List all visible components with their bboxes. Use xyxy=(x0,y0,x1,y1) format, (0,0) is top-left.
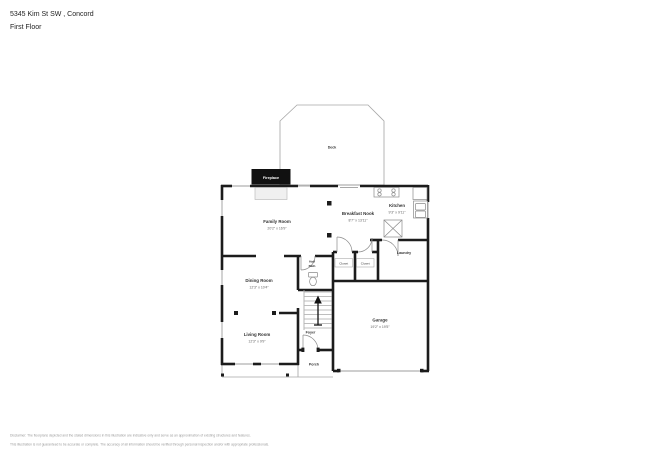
half-bath-label-line2: Bath xyxy=(309,264,316,268)
room-dims-family-room: 20'2" x 16'9" xyxy=(267,227,287,231)
staircase xyxy=(304,290,332,330)
room-dims-dining-room: 12'3" x 10'4" xyxy=(249,286,269,290)
room-dims-kitchen: 9'3" x 9'11" xyxy=(389,211,407,215)
address-title: 5345 Kim St SW , Concord xyxy=(10,11,94,18)
stove-icon xyxy=(374,188,399,198)
room-dims-living-room: 12'3" x 9'9" xyxy=(248,340,266,344)
disclaimer-line1: Disclaimer: The floorplans depicted and … xyxy=(10,434,251,438)
room-dims-breakfast-nook: 8'7" x 13'11" xyxy=(349,219,369,223)
floorplan-page: 5345 Kim St SW , Concord First Floor xyxy=(0,0,650,460)
deck-label: Deck xyxy=(328,146,337,150)
hearth xyxy=(255,188,287,200)
room-label-kitchen: Kitchen xyxy=(389,203,405,208)
room-label-living-room: Living Room xyxy=(244,332,271,337)
room-label-garage: Garage xyxy=(372,318,388,323)
porch-label: Porch xyxy=(309,363,319,367)
closet-left-label: Closet xyxy=(339,261,348,265)
room-label-family-room: Family Room xyxy=(263,219,291,224)
floorplan-canvas: 5345 Kim St SW , Concord First Floor xyxy=(0,0,650,460)
disclaimer-line2: This illustration is not guaranteed to b… xyxy=(10,443,269,447)
floor-title: First Floor xyxy=(10,24,42,31)
closet-right-label: Closet xyxy=(361,261,370,265)
room-label-dining-room: Dining Room xyxy=(245,278,272,283)
room-dims-garage: 19'2" x 19'5" xyxy=(370,325,390,329)
toilet-icon xyxy=(309,273,318,286)
foyer-label: Foyer xyxy=(306,331,316,335)
room-label-breakfast-nook: Breakfast Nook xyxy=(342,211,375,216)
fireplace-block: Fireplace xyxy=(252,169,291,200)
fireplace-label: Fireplace xyxy=(263,176,279,180)
laundry-label: Laundry xyxy=(397,251,411,255)
disclaimer: Disclaimer: The floorplans depicted and … xyxy=(10,434,269,447)
refrigerator-icon xyxy=(413,188,427,200)
sink-icon xyxy=(414,201,428,218)
kitchen-island-icon xyxy=(384,220,402,237)
